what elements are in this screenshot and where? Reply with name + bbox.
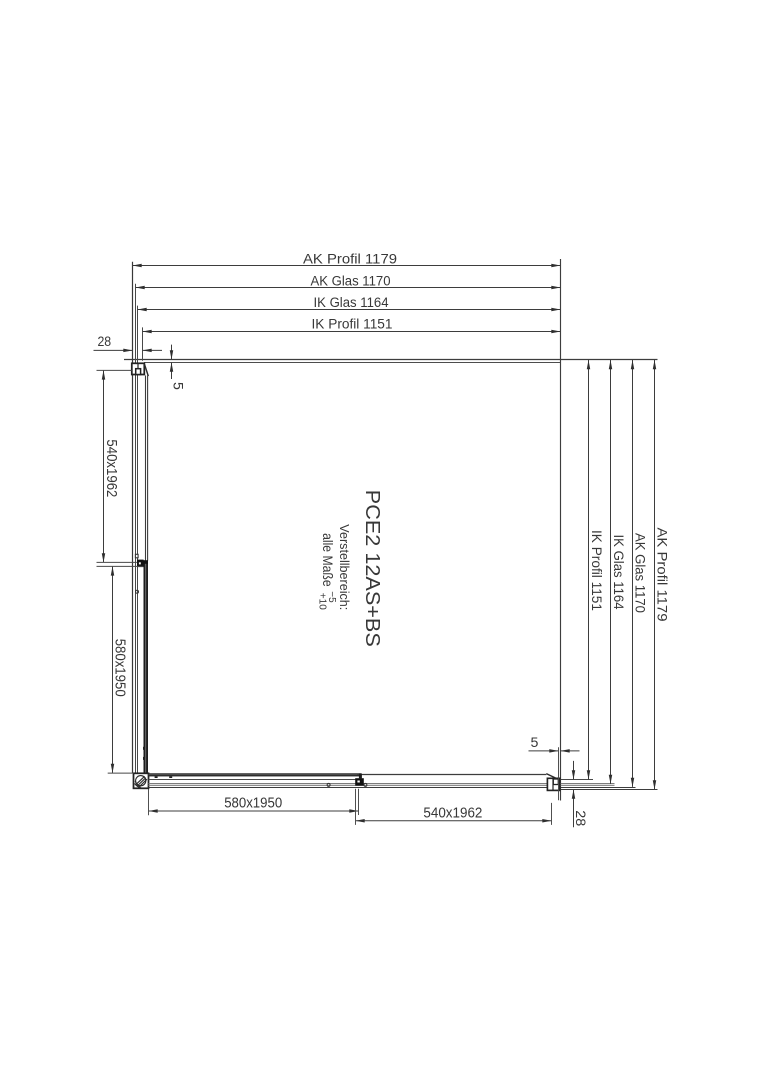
- svg-text:AK Glas 1170: AK Glas 1170: [311, 274, 391, 290]
- svg-text:IK Glas 1164: IK Glas 1164: [314, 295, 389, 311]
- svg-text:5: 5: [170, 382, 186, 390]
- svg-text:AK Profil 1179: AK Profil 1179: [654, 528, 670, 622]
- svg-text:540x1962: 540x1962: [423, 804, 482, 821]
- svg-text:IK Profil 1151: IK Profil 1151: [588, 530, 604, 611]
- svg-text:alle Maße: alle Maße: [320, 533, 336, 587]
- svg-text:+10: +10: [317, 593, 328, 610]
- svg-text:580x1950: 580x1950: [112, 639, 129, 697]
- svg-text:5: 5: [531, 735, 539, 751]
- svg-text:IK Profil 1151: IK Profil 1151: [312, 316, 393, 332]
- svg-text:IK Glas 1164: IK Glas 1164: [610, 535, 626, 610]
- svg-text:580x1950: 580x1950: [224, 795, 282, 812]
- svg-text:540x1962: 540x1962: [103, 439, 120, 497]
- svg-text:PCE2 12AS+BS: PCE2 12AS+BS: [361, 490, 383, 647]
- svg-text:AK Glas 1170: AK Glas 1170: [632, 533, 648, 613]
- svg-text:28: 28: [97, 334, 111, 350]
- svg-text:AK Profil 1179: AK Profil 1179: [303, 252, 397, 268]
- svg-text:28: 28: [572, 810, 588, 826]
- svg-text:Verstellbereich:: Verstellbereich:: [337, 524, 352, 610]
